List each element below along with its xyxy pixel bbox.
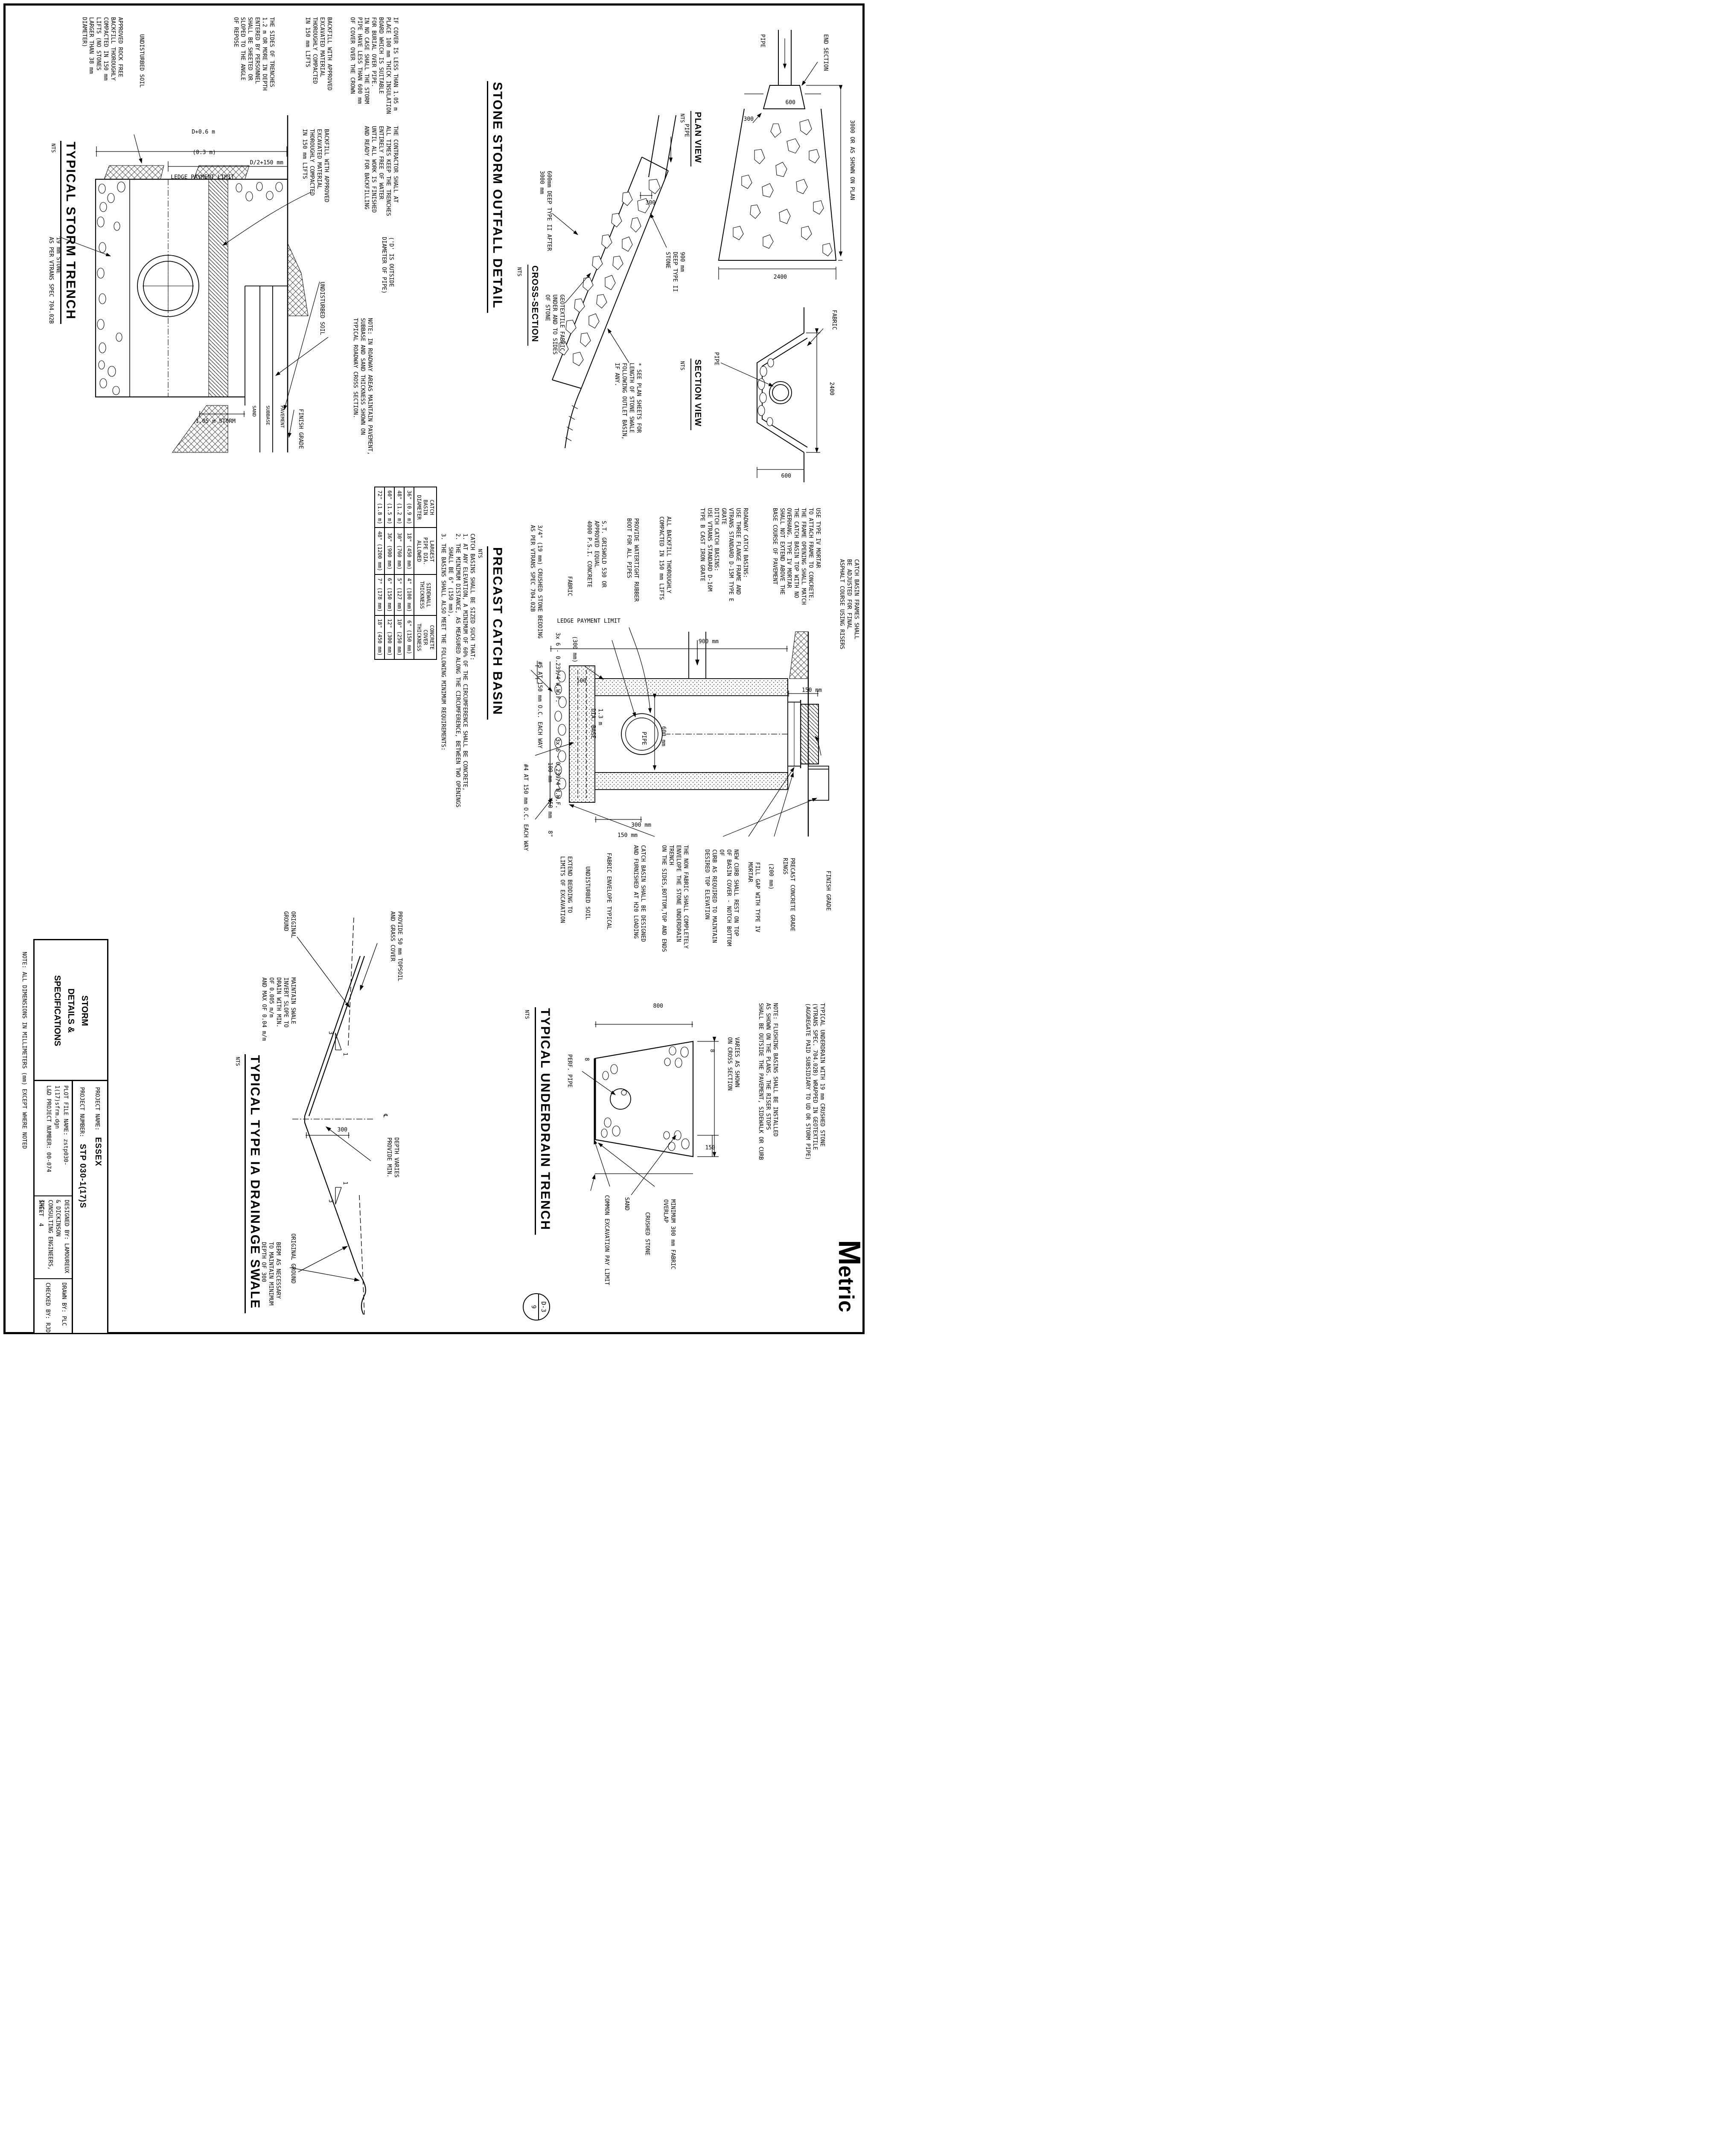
project-number-value: STP 030-1(17)S [78,1144,87,1208]
project-name-row: PROJECT NAME: ESSEX [92,1087,104,1166]
cb-pipe-label: PIPE [640,723,647,753]
cb-backfill-note: ALL BACKFILL THOROUGHLY COMPACTED IN 150… [657,516,672,606]
plan-pipe-label: PIPE [758,34,766,47]
section-dim-600: 600 [781,473,791,480]
outfall-section-view-panel: FABRIC 2400 600 PIPE SECTION VIEW NTS [672,299,855,499]
ud-dim-8a: 8 [708,1049,715,1052]
cb-grates-note: ROADWAY CATCH BASINS: USE THREE FLANGE F… [698,508,749,615]
title-block-project-box: PROJECT NAME: ESSEX PROJECT NUMBER: STP … [33,1080,108,1334]
outfall-cross-section-panel: PIPE 300 900 mm DEEP TYPE II STONE * SEE… [539,98,693,465]
cross-after-note: 600mm DEEP TYPE II AFTER 3000 mm [538,171,552,273]
cross-section-nts: NTS [516,267,522,277]
cb-envelope-label: FABRIC ENVELOPE TYPICAL [605,853,612,938]
cb-cell: 6" (150 mm) [384,574,394,615]
cb-table-row: 60" (1.5 m) 36" (900 mm) 6" (150 mm) 12"… [384,487,394,659]
cross-dim-300: 300 [646,200,655,207]
sheet-label: SHEET [38,1200,44,1216]
cb-cell: 5" (127 mm) [394,574,404,615]
catch-basin-title: PRECAST CATCH BASIN [487,546,504,720]
cb-cell: 36" (0.9 m) [404,487,414,528]
cb-dim-150b: 150 mm [618,832,638,840]
cb-dim-450: 450 mm [546,798,553,818]
checked-by-value: RJD [44,1323,51,1332]
ud-dim-8b: 8 [583,1058,590,1061]
designed-by-row: DESIGNED BY: LAMOUREUX & DICKINSON [54,1200,70,1277]
title-block: STORM DETAILS & SPECIFICATIONS PROJECT N… [4,939,113,1333]
ld-number-value: 00-074 [45,1152,52,1172]
plan-dim-600: 600 [786,99,795,107]
ud-overlap-label: MINIMUM 300 mm FABRIC OVERLAP [661,1199,676,1293]
outfall-plan-view-panel: 3000 OR AS SHOWN ON PLAN END SECTION PIP… [672,21,855,286]
storm-trench-nts: NTS [50,143,56,153]
ld-number-label: L&D PROJECT NUMBER: [45,1085,52,1149]
swale-slope-1: 1 [341,1052,348,1056]
swale-topsoil-label: PROVIDE 50 mm TOPSOIL AND GRASS COVER [388,911,403,1014]
drawn-by-label: DRAWN BY: [61,1283,67,1312]
section-dim-2400: 2400 [827,382,835,395]
swale-linework [283,905,390,1336]
storm-trench-panel: IF COVER IS LESS THAN 1.05 m PLACE 100 m… [10,17,399,469]
cb-bedding-note: 3/4" (19 mm) CRUSHED STONE BEDDING AS PE… [528,525,543,653]
cb-cell: 72" (1.8 m) [375,487,384,528]
ud-dim-150: 150 [705,1145,715,1152]
cb-dim-100mm: 100 mm [546,762,553,782]
cb-cell: 7" (178 mm) [375,574,384,615]
swale-invert-note: MAINTAIN SWALE INVERT SLOPE TO DRAIN WIT… [260,977,296,1050]
st-subbase: SUBBASE [265,405,271,425]
cb-table-row: 36" (0.9 m) 18" (450 mm) 4" (100 mm) 6" … [404,487,414,659]
cb-cell: 18" (450 mm) [404,528,414,574]
st-undisturbed-2: UNDISTURBED SOIL [318,282,325,354]
st-sand: SAND [251,405,257,417]
st-backfill-note-2: BACKFILL WITH APPROVED EXCAVATED MATERIA… [300,129,329,223]
swale-slope-3: 3 [326,1031,334,1035]
discipline-title: STORM DETAILS & SPECIFICATIONS [35,940,107,1081]
cb-wwf1-label: 3x 6 - 0.239/4 W.W.F. [553,633,561,709]
cb-cell: 30" (760 mm) [394,528,404,574]
cb-dim-150: 150 mm [802,687,822,694]
cross-see-plan-note: * SEE PLAN SHEETS FOR LENGTH OF STONE SW… [613,363,642,461]
cb-table-row: 72" (1.8 m) 48" (1200 mm) 7" (178 mm) 18… [375,487,384,659]
cb-dim-200: (200 mm) [767,863,774,944]
ud-pay-limit-label: COMMON EXCAVATION PAY LIMIT [603,1195,610,1289]
cb-cell: 18" (450 mm) [375,615,384,659]
cb-th-cover: CONCRETE COVER THICKNESS [414,615,437,659]
swale-original-ground-1: ORIGINAL GROUND [282,911,296,958]
cb-cell: 36" (900 mm) [384,528,394,574]
underdrain-notes-panel: TYPICAL UNDERDRAIN WITH 19 mm CRUSHED ST… [740,1003,825,1327]
st-sides-note: THE SIDES OF TRENCHES 1.2 m OR MORE IN D… [232,17,275,111]
detail-bubble: D-3 9 [523,1293,550,1321]
cb-th-sidewall: SIDEWALL THICKNESS [414,574,437,615]
st-contractor-note: THE CONTRACTOR SHALL AT ALL TIMES KEEP T… [363,126,399,226]
metric-logo-m: M [832,1240,866,1265]
cb-cell: 12" (300 mm) [384,615,394,659]
ud-sand-label: SAND [623,1197,630,1231]
outfall-detail-title: STONE STORM OUTFALL DETAIL [487,81,504,313]
cross-geotextile-label: GEOTEXTILE FABRIC UNDER AND TO SIDES OF … [543,294,565,380]
section-pipe-label: PIPE [712,352,719,365]
cb-fill-gap-label: FILL GAP WITH TYPE IV MORTAR [746,862,760,943]
cb-cell: 60" (1.5 m) [384,487,394,528]
st-undisturbed-1: UNDISTURBED SOIL [137,34,145,102]
cb-th-diameter: CATCH BASIN DIAMETER [414,487,437,528]
plot-file-row: PLOT FILE NAME: zstp030-1(17)sfrm.dgn [53,1085,70,1192]
ud-typical-note: TYPICAL UNDERDRAIN WITH 19 mm CRUSHED ST… [804,1003,825,1174]
cb-non-fabric-note: THE NON FABRIC SHALL COMPLETELY ENVELOPE… [660,845,689,956]
ud-flushing-note: NOTE: FLUSHING BASINS SHALL BE INSTALLED… [757,1003,778,1174]
swale-berm-note: BERM AS NECESSARY TO MAINTAIN MINIMUM DE… [259,1242,281,1332]
st-ledge-label: LEDGE PAYMENT LIMIT [171,174,234,181]
cb-ledge-label: LEDGE PAYMENT LIMIT [557,618,620,625]
cross-section-subtitle: CROSS-SECTION [527,265,539,346]
metric-logo-etric: etric [834,1265,858,1313]
sheet-number: 4 [38,1223,44,1227]
st-finish-grade: FINISH GRADE [297,409,304,460]
cb-dim-600: 600 mm [659,717,667,755]
plan-dim-2400: 2400 [774,274,787,281]
title-block-col-divider-2 [35,1278,73,1279]
underdrain-nts: NTS [524,1010,530,1019]
st-stone-note: 19 mm STONE AS PER VTRANS SPEC 704.02B [47,237,61,348]
project-number-label: PROJECT NUMBER: [79,1087,85,1137]
catch-basin-nts: NTS [477,549,483,558]
drawn-by-row: DRAWN BY: PLC [60,1283,68,1326]
metric-logo: Metric [834,1240,862,1313]
cb-rebar5-label: #5 AT 150 mm O.C. EACH WAY [536,662,543,760]
cb-finish-grade-label: FINISH GRADE [824,871,831,922]
ud-crushed-label: CRUSHED STONE [643,1212,650,1280]
underdrain-linework [582,1007,723,1187]
swale-slope-1b: 1 [341,1181,348,1185]
checked-by-row: CHECKED BY: RJD [44,1283,52,1332]
project-name-value: ESSEX [93,1137,102,1166]
swale-panel: PROVIDE 50 mm TOPSOIL AND GRASS COVER DE… [232,905,403,1336]
drawn-by-value: PLC [61,1316,67,1326]
checked-by-label: CHECKED BY: [44,1283,51,1319]
st-dim-total-width: D+0.6 m [192,129,215,136]
cb-dim-300p: (300 mm) [571,636,578,674]
ud-perf-pipe-label: PERF. PIPE [565,1054,573,1105]
outfall-section-linework [706,299,847,499]
cb-dim-8in: 8" [546,831,553,837]
underdrain-panel: VARIES AS SHOWN ON CROSS SECTION 150 800… [514,994,740,1336]
st-insulation-note: IF COVER IS LESS THAN 1.05 m PLACE 100 m… [348,17,399,117]
cb-extend-bedding-label: EXTEND BEDDING TO LIMITS OF EXCAVATION [558,856,573,937]
swale-original-ground-2: ORIGINAL GROUND [289,1233,296,1306]
cb-dim-100: 100 [577,678,586,685]
catch-basin-linework [518,615,834,854]
ud-dim-800: 800 [653,1003,663,1010]
cb-cell: 10" (250 mm) [394,615,404,659]
cross-stone-depth-label: 900 mm DEEP TYPE II STONE [664,252,685,316]
drawing-sheet: 3000 OR AS SHOWN ON PLAN END SECTION PIP… [0,0,868,1338]
catch-basin-panel: CATCH BASIN FRAMES SHALL BE ADJUSTED FOR… [501,508,859,947]
title-block-discipline-box: STORM DETAILS & SPECIFICATIONS [33,939,108,1082]
cb-table-row: 48" (1.2 m) 30" (760 mm) 5" (127 mm) 10"… [394,487,404,659]
st-dim-cover: 1.05 m STORM [195,418,236,426]
catch-basin-sizing-notes: CATCH BASINS SHALL BE SIZED SUCH THAT: 1… [440,533,475,866]
st-d-note: ('D' IS OUTSIDE DIAMETER OF PIPE) [380,237,394,309]
title-block-col-divider-1 [35,1195,73,1196]
plan-length-dim: 3000 OR AS SHOWN ON PLAN [848,94,855,226]
storm-trench-title: TYPICAL STORM TRENCH [60,141,78,324]
cb-frames-note: CATCH BASIN FRAMES SHALL BE ADJUSTED FOR… [838,559,859,670]
cb-cell: 6" (150 mm) [404,615,414,659]
catch-basin-table: CATCH BASIN DIAMETER LARGEST PIPE DIA. A… [374,487,437,660]
st-backfill-note: BACKFILL WITH APPROVED EXCAVATED MATERIA… [303,17,332,111]
underdrain-title: TYPICAL UNDERDRAIN TRENCH [535,1007,552,1235]
st-rock-free-note: APPROVED ROCK FREE BACKFILL THOROUGHLY C… [80,17,123,107]
title-block-divider [72,1081,73,1333]
dimensions-note: NOTE: ALL DIMENSIONS IN MILLIMETERS (mm)… [20,952,27,1327]
cb-cell: 48" (1200 mm) [375,528,384,574]
swale-dim-300: 300 [338,1127,347,1134]
swale-title: TYPICAL TYPE IA DRAINAGE SWALE [245,1054,262,1313]
cb-fabric-label: FABRIC [565,576,573,610]
st-dim-offset: (0.3 m) [192,149,216,157]
cb-dim-900: 900 mm [699,638,719,646]
swale-nts: NTS [235,1057,241,1066]
cb-mortar-note: USE TYPE IV MORTAR TO ATTACH FRAME TO CO… [771,508,821,615]
cb-cell: 48" (1.2 m) [394,487,404,528]
cb-curb-note: NEW CURB SHALL REST ON TOP OF BASIN COVE… [703,849,739,956]
end-section-label: END SECTION [821,34,829,85]
cross-pipe-label: PIPE [682,124,690,137]
st-roadway-note: NOTE: IN ROADWAY AREAS MAINTAIN PAVEMENT… [351,318,373,467]
cb-wwf2-label: 3x 6 - 0.239/4 W.W.F. [553,738,561,815]
st-dim-half-width: D/2+150 mm [250,160,283,167]
sheet-row: SHEET 4 [37,1200,45,1227]
designed-by-label: DESIGNED BY: [63,1200,70,1240]
project-name-label: PROJECT NAME: [94,1087,100,1131]
st-pavement: PAVEMENT [279,405,285,428]
cb-dim-300: 300 mm [631,822,651,829]
cb-undisturbed-soil-label: UNDISTURBED SOIL [583,866,591,935]
swale-depth-label: DEPTH VARIES PROVIDE MIN. [385,1137,399,1214]
cb-cell: 4" (100 mm) [404,574,414,615]
storm-trench-linework [70,115,335,452]
cb-base-label: 1.3 m DIA. BASE [589,708,603,755]
swale-slope-3b: 3 [326,1199,334,1203]
swale-centerline-symbol: ℄ [381,1114,388,1117]
ld-number-row: L&D PROJECT NUMBER: 00-074 [44,1085,53,1192]
scanned-plan-sheet: 3000 OR AS SHOWN ON PLAN END SECTION PIP… [0,0,868,1338]
ud-varies-label: VARIES AS SHOWN ON CROSS SECTION [725,1037,740,1122]
project-number-row: PROJECT NUMBER: STP 030-1(17)S [76,1087,89,1208]
section-fabric-label: FABRIC [830,310,837,330]
detail-bubble-sheet: 9 [530,1294,538,1320]
detail-bubble-number: D-3 [538,1294,549,1320]
cb-concrete-note: S.T. GRISWOLD 530 OR APPROVED EQUAL 4000… [585,521,607,602]
plan-dim-300: 300 [744,116,754,123]
cb-rebar4-label: #4 AT 150 mm O.C. EACH WAY [521,764,529,862]
cb-table-header-row: CATCH BASIN DIAMETER LARGEST PIPE DIA. A… [414,487,437,659]
plot-file-label: PLOT FILE NAME: [62,1085,69,1135]
cb-h20-note: CATCH BASIN SHALL BE DESIGNED AND FURNIS… [632,845,646,952]
cb-th-pipe: LARGEST PIPE DIA. ALLOWED [414,528,437,574]
cb-grade-rings-label: PRECAST CONCRETE GRADE RINGS [781,858,795,943]
cb-boot-note: PROVIDE WATERTIGHT RUBBER BOOT FOR ALL P… [625,518,639,610]
